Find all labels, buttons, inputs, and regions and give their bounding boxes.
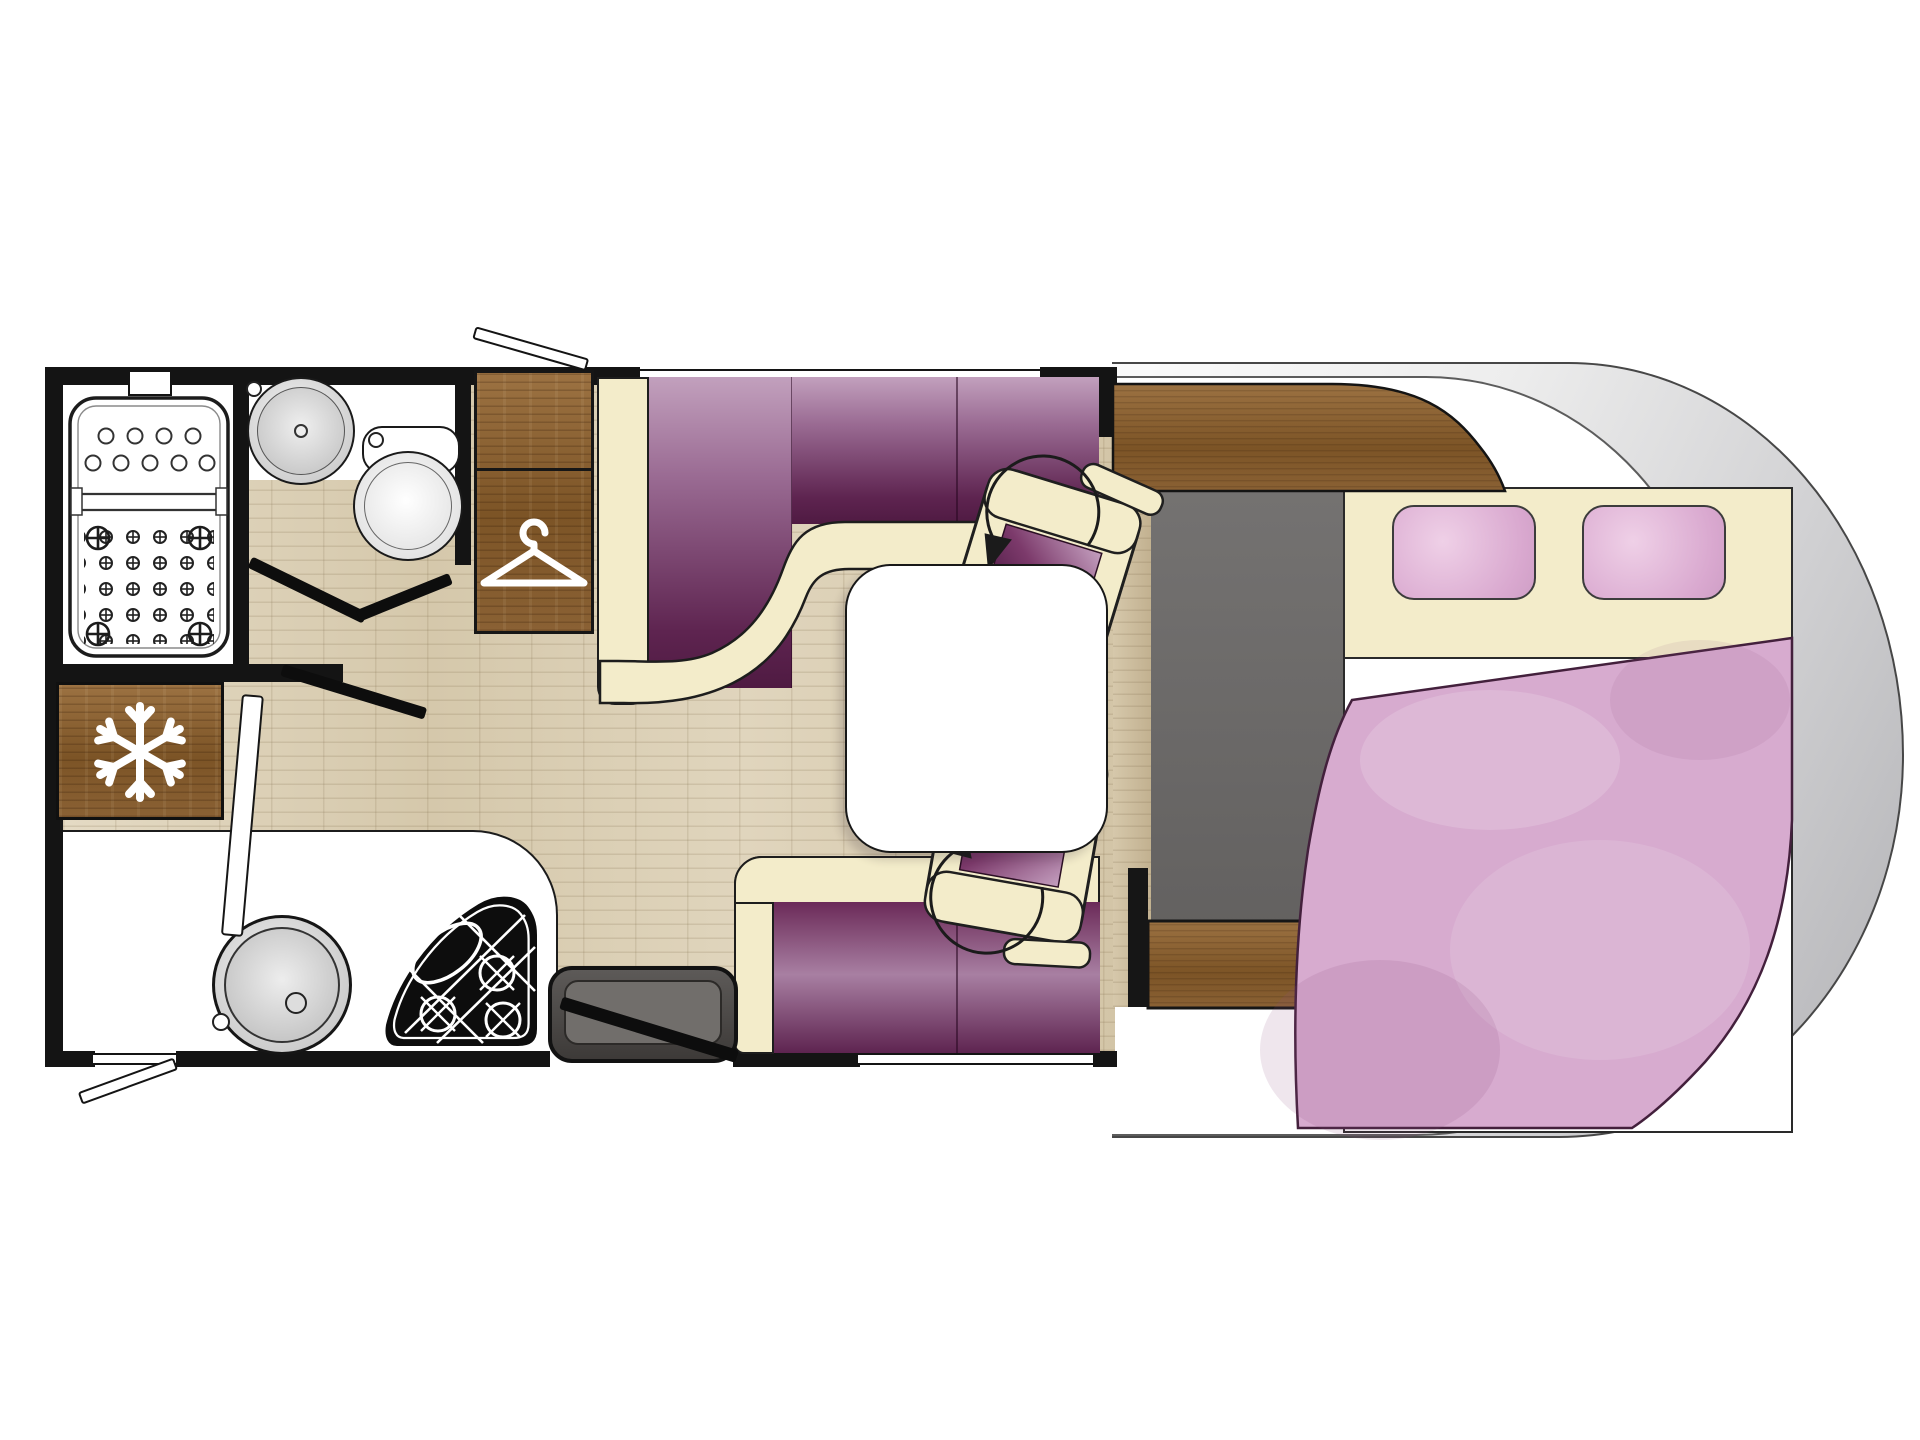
hob-3-burner xyxy=(386,898,536,1045)
floorplan-canvas xyxy=(0,0,1920,1440)
dining-table xyxy=(845,564,1108,853)
snowflake-icon xyxy=(95,706,186,798)
dashboard-shelf xyxy=(1113,384,1505,491)
hanger-icon xyxy=(484,522,584,583)
shower-tray xyxy=(70,398,228,656)
duvet xyxy=(1260,638,1792,1140)
